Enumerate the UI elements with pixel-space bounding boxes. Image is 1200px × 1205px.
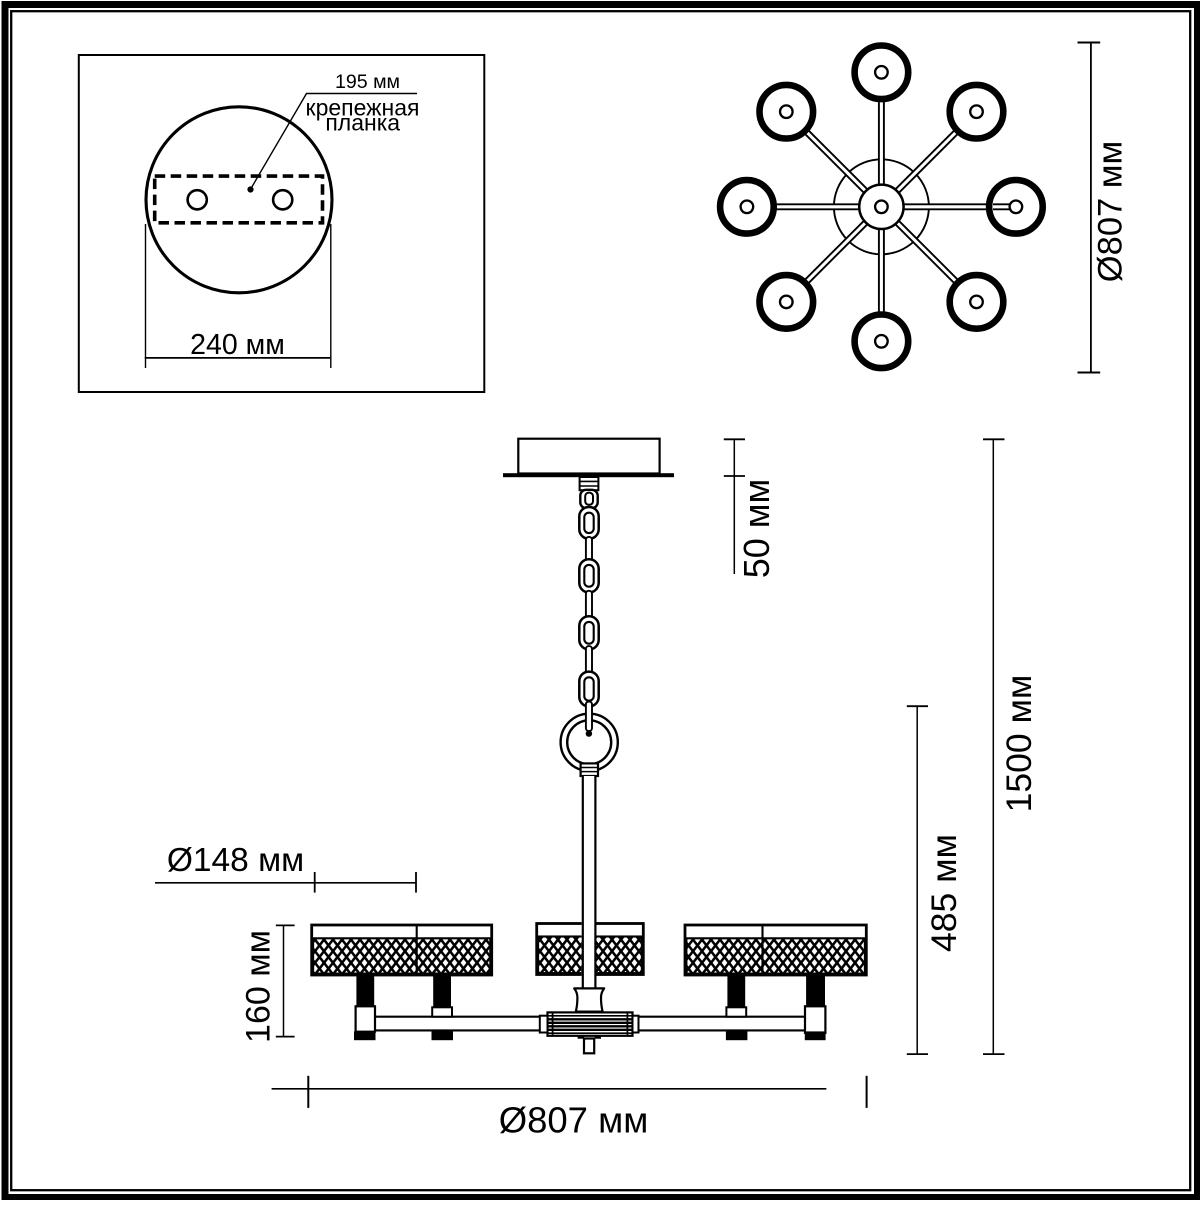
- svg-text:Ø807 мм: Ø807 мм: [499, 1100, 649, 1141]
- svg-text:195 мм: 195 мм: [335, 71, 400, 93]
- svg-text:50 мм: 50 мм: [736, 479, 777, 579]
- svg-text:1500 мм: 1500 мм: [999, 675, 1039, 813]
- svg-text:160 мм: 160 мм: [240, 930, 278, 1043]
- svg-text:Ø148 мм: Ø148 мм: [167, 842, 304, 879]
- svg-text:планка: планка: [325, 110, 400, 136]
- svg-text:485 мм: 485 мм: [924, 834, 964, 952]
- svg-text:240 мм: 240 мм: [190, 329, 285, 361]
- svg-text:Ø807 мм: Ø807 мм: [1092, 141, 1130, 282]
